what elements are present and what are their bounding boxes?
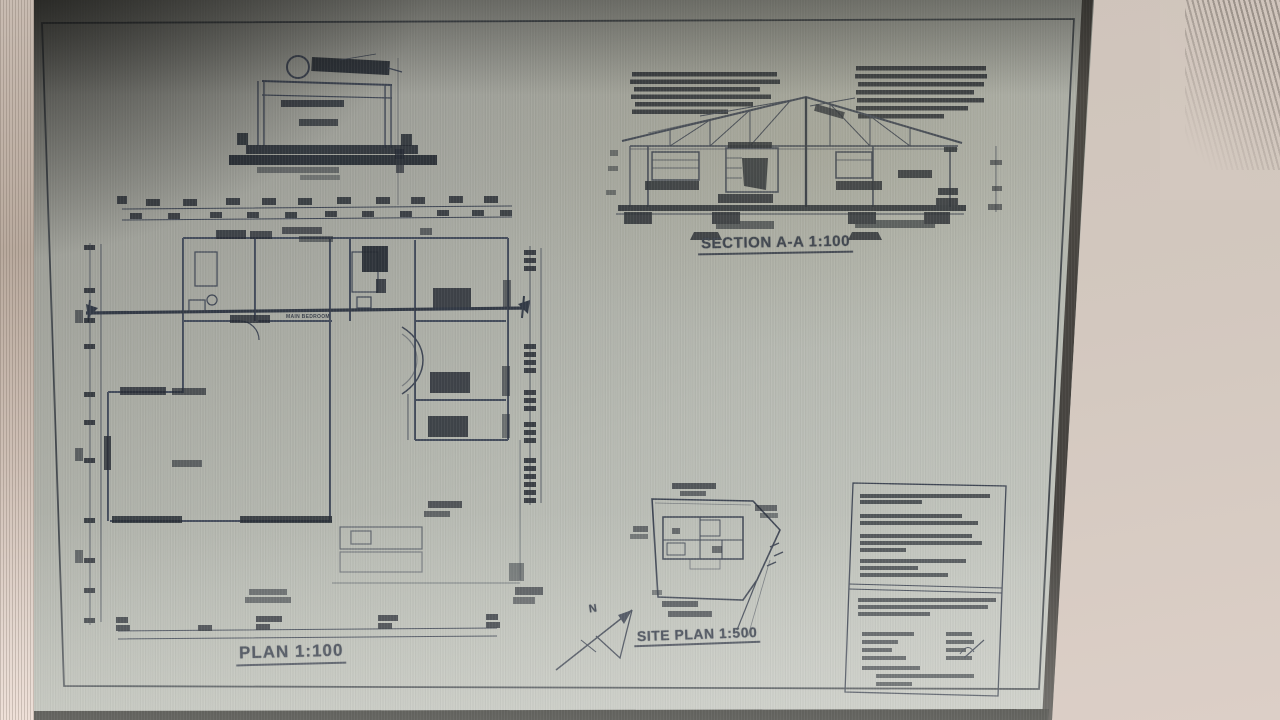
photo-of-blueprint-scene: SECTION A-A 1:100 PLAN 1:100 SITE PLAN 1… bbox=[0, 0, 1280, 720]
left-wall-strip bbox=[0, 0, 37, 720]
photo-shadow bbox=[0, 0, 1280, 720]
blueprint-photo: SECTION A-A 1:100 PLAN 1:100 SITE PLAN 1… bbox=[0, 0, 1280, 720]
wall-texture-fade bbox=[1160, 0, 1280, 200]
left-strip-stripes bbox=[0, 0, 34, 720]
